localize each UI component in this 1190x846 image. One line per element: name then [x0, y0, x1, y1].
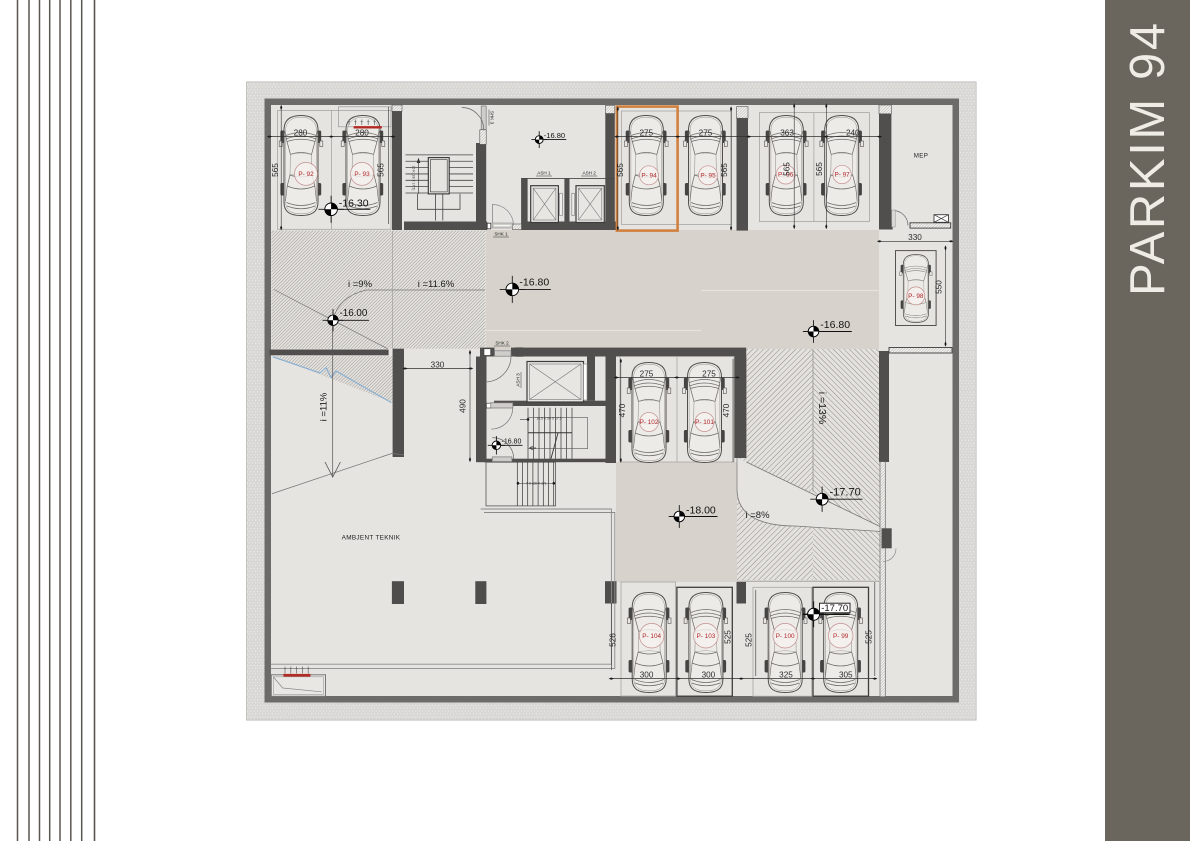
svg-text:P- 102: P- 102	[640, 419, 659, 426]
svg-text:P- 103: P- 103	[696, 633, 715, 640]
svg-text:-17.70: -17.70	[821, 603, 848, 614]
svg-text:i =11.6%: i =11.6%	[418, 279, 455, 290]
svg-text:330: 330	[908, 233, 922, 242]
svg-text:P- 94: P- 94	[641, 173, 657, 180]
svg-text:P- 92: P- 92	[298, 171, 314, 178]
svg-text:565: 565	[815, 162, 824, 176]
svg-text:i =11%: i =11%	[319, 392, 330, 421]
svg-text:-16.30: -16.30	[339, 197, 369, 209]
svg-text:275: 275	[640, 369, 654, 378]
svg-text:300: 300	[640, 670, 654, 679]
svg-text:305: 305	[839, 670, 853, 679]
svg-text:275: 275	[699, 128, 713, 137]
svg-text:i =8%: i =8%	[745, 510, 770, 521]
svg-text:-17.70: -17.70	[830, 487, 861, 499]
svg-text:-18.00: -18.00	[686, 504, 716, 516]
svg-text:P- 95: P- 95	[700, 173, 716, 180]
svg-text:280: 280	[294, 128, 308, 137]
svg-text:330: 330	[431, 360, 445, 369]
svg-text:525: 525	[865, 630, 874, 644]
svg-text:300: 300	[702, 670, 716, 679]
svg-text:18.5 X 20 X 17.5: 18.5 X 20 X 17.5	[536, 417, 561, 421]
svg-text:550: 550	[935, 280, 944, 294]
svg-text:P- 101: P- 101	[695, 419, 714, 426]
svg-text:SHK 2: SHK 2	[495, 341, 509, 346]
svg-text:SHK 1: SHK 1	[494, 232, 508, 237]
svg-text:P- 100: P- 100	[776, 633, 795, 640]
svg-text:240: 240	[846, 128, 860, 137]
svg-text:275: 275	[702, 369, 716, 378]
svg-text:470: 470	[722, 403, 731, 417]
svg-text:P- 104: P- 104	[642, 633, 661, 640]
svg-text:SHK 3: SHK 3	[490, 111, 495, 125]
svg-text:-16.80: -16.80	[820, 319, 850, 331]
svg-text:525: 525	[724, 630, 733, 644]
svg-text:AMBJENT TEKNIK: AMBJENT TEKNIK	[342, 535, 401, 542]
svg-text:-16.80: -16.80	[519, 277, 549, 289]
svg-text:325: 325	[779, 670, 793, 679]
svg-text:P- 99: P- 99	[833, 633, 849, 640]
svg-text:470: 470	[618, 403, 627, 417]
svg-text:565: 565	[616, 163, 625, 177]
svg-text:-16.80: -16.80	[544, 131, 565, 140]
svg-text:526: 526	[609, 633, 618, 647]
svg-text:P- 98: P- 98	[908, 293, 924, 300]
svg-text:490: 490	[459, 399, 468, 413]
svg-text:i =9%: i =9%	[348, 279, 373, 290]
svg-text:565: 565	[783, 162, 792, 176]
svg-text:P- 97: P- 97	[834, 172, 850, 179]
svg-text:-16.80: -16.80	[502, 439, 522, 446]
svg-text:565: 565	[377, 163, 386, 177]
svg-text:ASH 3: ASH 3	[516, 373, 521, 387]
svg-text:363: 363	[780, 128, 794, 137]
svg-text:MEP: MEP	[914, 153, 929, 160]
svg-text:275: 275	[639, 128, 653, 137]
svg-text:i =13%: i =13%	[816, 392, 828, 424]
svg-text:565: 565	[720, 163, 729, 177]
svg-text:PARKIM 94: PARKIM 94	[1121, 20, 1175, 296]
svg-text:ASH 1: ASH 1	[537, 171, 551, 176]
svg-text:ASH 2: ASH 2	[583, 171, 597, 176]
svg-text:16 K (28 X 17.5): 16 K (28 X 17.5)	[412, 166, 416, 191]
svg-text:565: 565	[271, 163, 280, 177]
svg-text:525: 525	[745, 633, 754, 647]
svg-text:280: 280	[355, 128, 369, 137]
svg-text:P- 93: P- 93	[354, 171, 370, 178]
svg-text:-16.00: -16.00	[340, 308, 368, 319]
